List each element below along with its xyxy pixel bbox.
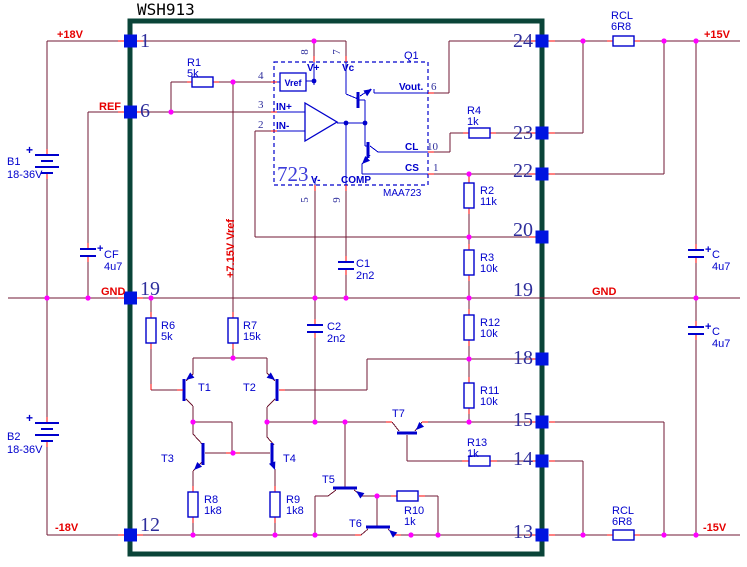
resistor-value-label: 1k [467, 448, 479, 460]
ic-pin-name-CL: CL [405, 142, 418, 153]
pin-number-13: 13 [513, 521, 533, 543]
pin-number-19: 19 [140, 278, 160, 300]
ic-junction-dot [312, 79, 317, 84]
battery-polarity: + [26, 411, 33, 425]
net-label: +18V [57, 29, 84, 41]
ic-pin-number-8: 8 [299, 49, 311, 55]
resistor-value-label: 10k [480, 396, 498, 408]
ic-big-label: 723 [277, 162, 309, 186]
battery-ref-label: B1 [7, 156, 20, 168]
ic-pin-name-Vc: Vc [342, 63, 355, 74]
pin-pad-24 [536, 35, 549, 48]
junction-dot [168, 109, 173, 114]
module-title: WSH913 [137, 0, 195, 19]
junction-dot [466, 234, 471, 239]
ic-wire [370, 146, 378, 152]
module-border [130, 21, 542, 554]
junction-dot [343, 295, 348, 300]
pin-number-24: 24 [513, 30, 533, 52]
ic-pin-number-1: 1 [433, 162, 439, 174]
resistor-R9 [270, 492, 280, 517]
junction-dot [312, 295, 317, 300]
ic-pin-number-9: 9 [331, 197, 343, 203]
ic-opamp-triangle [305, 103, 337, 141]
junction-dot [230, 355, 235, 360]
junction-dot [230, 79, 235, 84]
resistor-R12 [464, 315, 474, 340]
battery-value-label: 18-36V [7, 169, 43, 181]
ic-pin-number-3: 3 [258, 99, 264, 111]
resistor-value-label: 6R8 [612, 516, 632, 528]
ic-pin-name-IN-: IN- [276, 121, 289, 132]
wire [392, 422, 399, 431]
junction-dot [693, 295, 698, 300]
resistor-value-label: 1k8 [204, 505, 222, 517]
capacitor-value-label: 2n2 [327, 333, 345, 345]
arrow-T5 [356, 491, 364, 499]
wire [361, 529, 368, 535]
capacitor-polarity: + [97, 243, 103, 255]
wire [186, 399, 193, 406]
junction-dot [693, 532, 698, 537]
ic-junction-dot [363, 121, 368, 126]
ic-pin-name-CS: CS [405, 163, 419, 174]
ic-wire [346, 94, 358, 99]
transistor-label-T2: T2 [243, 382, 256, 394]
pin-number-1: 1 [140, 30, 150, 52]
pin-pad-18 [536, 353, 549, 366]
junction-dot [435, 532, 440, 537]
junction-dot [342, 419, 347, 424]
resistor-R11 [464, 383, 474, 408]
capacitor-polarity: + [705, 244, 711, 256]
pin-number-23: 23 [513, 122, 533, 144]
arrow-T7 [416, 422, 424, 430]
resistor-R10 [397, 491, 418, 501]
resistor-R4 [469, 128, 490, 138]
ic-pin-name-Vout.: Vout. [399, 82, 423, 93]
capacitor-ref-label: C2 [327, 321, 341, 333]
ic-pin-number-2: 2 [258, 119, 264, 131]
pin-pad-6 [124, 106, 137, 119]
junction-dot [374, 493, 379, 498]
resistor-RCL [613, 530, 634, 540]
net-label: +15V [704, 29, 731, 41]
ic-pin-number-6: 6 [431, 81, 437, 93]
transistor-label-Q1: Q1 [404, 50, 419, 62]
wire [267, 399, 275, 407]
battery-polarity: + [26, 143, 33, 157]
ic-pin-name-V+: V+ [307, 63, 320, 74]
ic-pin-number-10: 10 [427, 141, 439, 153]
ic-pin-number-5: 5 [299, 197, 311, 203]
ic-pin-name-IN+: IN+ [276, 102, 292, 113]
arrow-T4 [269, 461, 275, 470]
pin-pad-22 [536, 168, 549, 181]
junction-dot [693, 38, 698, 43]
capacitor-ref-label: C [712, 326, 720, 338]
junction-dot [264, 419, 269, 424]
pin-pad-19 [124, 292, 137, 305]
pin-number-6: 6 [140, 100, 150, 122]
battery-ref-label: B2 [7, 431, 20, 443]
transistor-label-T1: T1 [198, 382, 211, 394]
resistor-R6 [146, 318, 156, 343]
schematic-canvas: WSH913 WSH913VrefR15kRCL6R8RCL6R8R41kR13… [0, 0, 747, 567]
resistor-value-label: 10k [480, 263, 498, 275]
junction-dot [580, 532, 585, 537]
pin-pad-20 [536, 231, 549, 244]
ic-vref-label: Vref [284, 78, 302, 88]
junction-dot [466, 356, 471, 361]
junction-dot [272, 532, 277, 537]
pin-number-12: 12 [140, 514, 160, 536]
arrow-T6 [389, 530, 397, 538]
junction-dot [466, 171, 471, 176]
junction-dot [44, 295, 49, 300]
pin-number-20: 20 [513, 219, 533, 241]
junction-dot [311, 38, 316, 43]
resistor-R2 [464, 183, 474, 208]
net-label: +7.15V Vref [225, 219, 237, 278]
transistor-label-T7: T7 [392, 408, 405, 420]
resistor-R7 [228, 318, 238, 343]
ic-pin-name-V-: V- [311, 175, 320, 186]
capacitor-polarity: + [705, 321, 711, 333]
net-label: -18V [55, 522, 79, 534]
resistor-value-label: 5k [187, 68, 199, 80]
junction-dot [661, 38, 666, 43]
capacitor-value-label: 2n2 [356, 270, 374, 282]
capacitor-value-label: 4u7 [712, 338, 730, 350]
ic-junction-dot [344, 121, 349, 126]
net-label: -15V [703, 522, 727, 534]
pin-number-18: 18 [513, 347, 533, 369]
battery-value-label: 18-36V [7, 444, 43, 456]
capacitor-ref-label: C1 [356, 258, 370, 270]
resistor-value-label: 1k [467, 116, 479, 128]
junction-dot [466, 295, 471, 300]
junction-dot [312, 532, 317, 537]
ic-pin-number-7: 7 [331, 49, 343, 55]
resistor-value-label: 10k [480, 328, 498, 340]
net-label: GND [101, 286, 126, 298]
ic-pin-name-COMP: COMP [341, 175, 371, 186]
pin-number-22: 22 [513, 160, 533, 182]
resistor-value-label: 1k [404, 516, 416, 528]
ic-pin-number-4: 4 [258, 70, 264, 82]
resistor-RCL [613, 36, 634, 46]
capacitor-ref-label: CF [104, 249, 119, 261]
pin-number-19-right: 19 [513, 279, 533, 301]
resistor-R8 [188, 492, 198, 517]
junction-dot [85, 295, 90, 300]
capacitor-value-label: 4u7 [712, 261, 730, 273]
ic-part-label: MAA723 [383, 188, 422, 199]
pin-pad-12 [124, 529, 137, 542]
pin-number-15: 15 [513, 409, 533, 431]
junction-dot [580, 38, 585, 43]
junction-dot [230, 450, 235, 455]
pin-number-14: 14 [513, 448, 533, 470]
junction-dot [190, 532, 195, 537]
resistor-value-label: 1k8 [286, 505, 304, 517]
transistor-label-T5: T5 [322, 474, 335, 486]
transistor-label-T6: T6 [349, 518, 362, 530]
net-label: GND [592, 286, 617, 298]
wire [328, 490, 336, 496]
pin-pad-13 [536, 529, 549, 542]
junction-dot [661, 532, 666, 537]
junction-dot [190, 419, 195, 424]
resistor-value-label: 11k [480, 196, 497, 208]
pin-pad-23 [536, 127, 549, 140]
schematic-page: WSH913 WSH913VrefR15kRCL6R8RCL6R8R41kR13… [0, 0, 747, 567]
pin-pad-14 [536, 455, 549, 468]
resistor-R3 [464, 250, 474, 275]
junction-dot [312, 419, 317, 424]
capacitor-ref-label: C [712, 249, 720, 261]
pin-pad-15 [536, 416, 549, 429]
net-label: REF [99, 101, 121, 113]
resistor-value-label: 5k [161, 331, 173, 343]
pin-pad-1 [124, 35, 137, 48]
transistor-label-T4: T4 [283, 453, 296, 465]
junction-dot [466, 419, 471, 424]
resistor-value-label: 15k [243, 331, 261, 343]
capacitor-value-label: 4u7 [104, 261, 122, 273]
junction-dot [408, 532, 413, 537]
transistor-label-T3: T3 [161, 453, 174, 465]
resistor-value-label: 6R8 [611, 21, 631, 33]
